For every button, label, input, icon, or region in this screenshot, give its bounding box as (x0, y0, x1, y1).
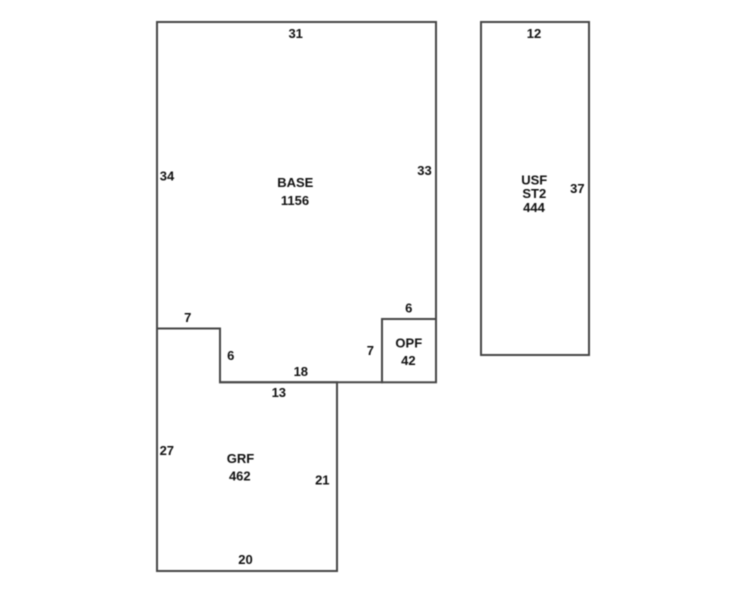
svg-text:13: 13 (272, 385, 286, 400)
svg-text:31: 31 (288, 26, 302, 41)
svg-text:21: 21 (315, 473, 329, 488)
svg-text:18: 18 (294, 364, 308, 379)
svg-text:OPF: OPF (395, 336, 422, 351)
svg-text:BASE: BASE (277, 175, 313, 190)
svg-text:6: 6 (227, 348, 234, 363)
svg-text:GRF: GRF (227, 451, 255, 466)
svg-text:462: 462 (229, 469, 251, 484)
svg-text:20: 20 (238, 552, 252, 567)
svg-text:33: 33 (417, 163, 431, 178)
svg-text:42: 42 (401, 353, 415, 368)
svg-text:7: 7 (367, 343, 374, 358)
svg-text:1156: 1156 (281, 193, 309, 208)
svg-text:37: 37 (570, 181, 584, 196)
svg-text:444: 444 (523, 200, 545, 215)
svg-text:27: 27 (160, 443, 174, 458)
svg-text:6: 6 (405, 301, 412, 316)
svg-text:34: 34 (160, 169, 175, 184)
svg-text:12: 12 (527, 26, 541, 41)
svg-text:ST2: ST2 (522, 186, 546, 201)
svg-text:7: 7 (184, 310, 191, 325)
